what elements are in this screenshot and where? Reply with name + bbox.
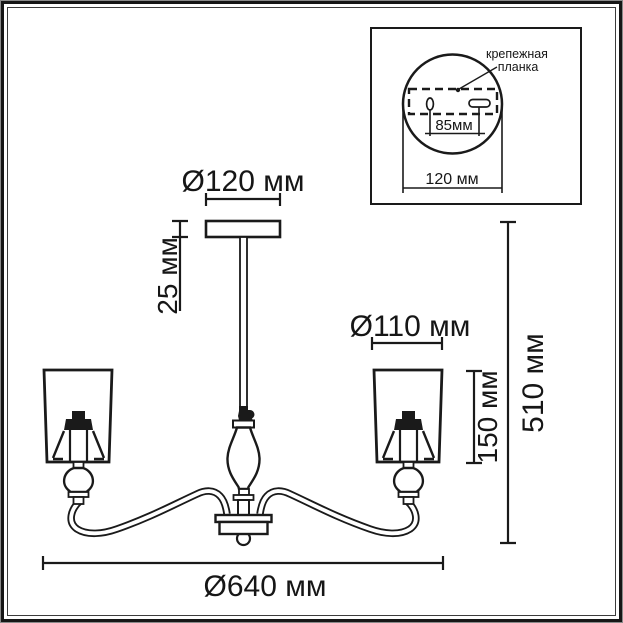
fixture-diameter-dimension xyxy=(43,556,443,570)
down-rod xyxy=(240,237,247,408)
left-arm xyxy=(71,491,227,533)
plate-width-label: 120 мм xyxy=(425,171,478,188)
fixture-height-label: 510 мм xyxy=(517,333,550,433)
glass-vase xyxy=(227,428,259,490)
canopy-diameter-label: Ø120 мм xyxy=(182,165,305,198)
mounting-plate-label-line2: планка xyxy=(498,60,539,74)
right-arm xyxy=(260,491,416,533)
socket-cap-top xyxy=(72,411,85,419)
canopy-height-label: 25 мм xyxy=(152,237,183,314)
candle-stem xyxy=(74,497,84,504)
hub-body xyxy=(220,522,268,534)
left-lamp xyxy=(44,370,112,504)
mounting-plate-label-line1: крепежная xyxy=(486,47,548,61)
dimension-drawing-page: Ø120 мм 25 мм Ø110 мм 150 мм 510 мм Ø640… xyxy=(0,0,623,623)
chandelier-drawing: Ø120 мм 25 мм Ø110 мм 150 мм 510 мм Ø640… xyxy=(0,0,623,623)
fixture-diameter-label: Ø640 мм xyxy=(204,570,327,603)
dimensions xyxy=(43,193,516,570)
shade-height-label: 150 мм xyxy=(472,371,503,464)
vase-foot xyxy=(238,500,249,515)
candle-bulb xyxy=(64,468,93,492)
right-lamp xyxy=(374,370,442,504)
holes-spacing-label: 85мм xyxy=(435,117,472,134)
canopy-circle xyxy=(403,55,502,154)
shade-diameter-label: Ø110 мм xyxy=(350,310,471,343)
canopy xyxy=(206,221,280,237)
socket-cap xyxy=(64,419,93,430)
